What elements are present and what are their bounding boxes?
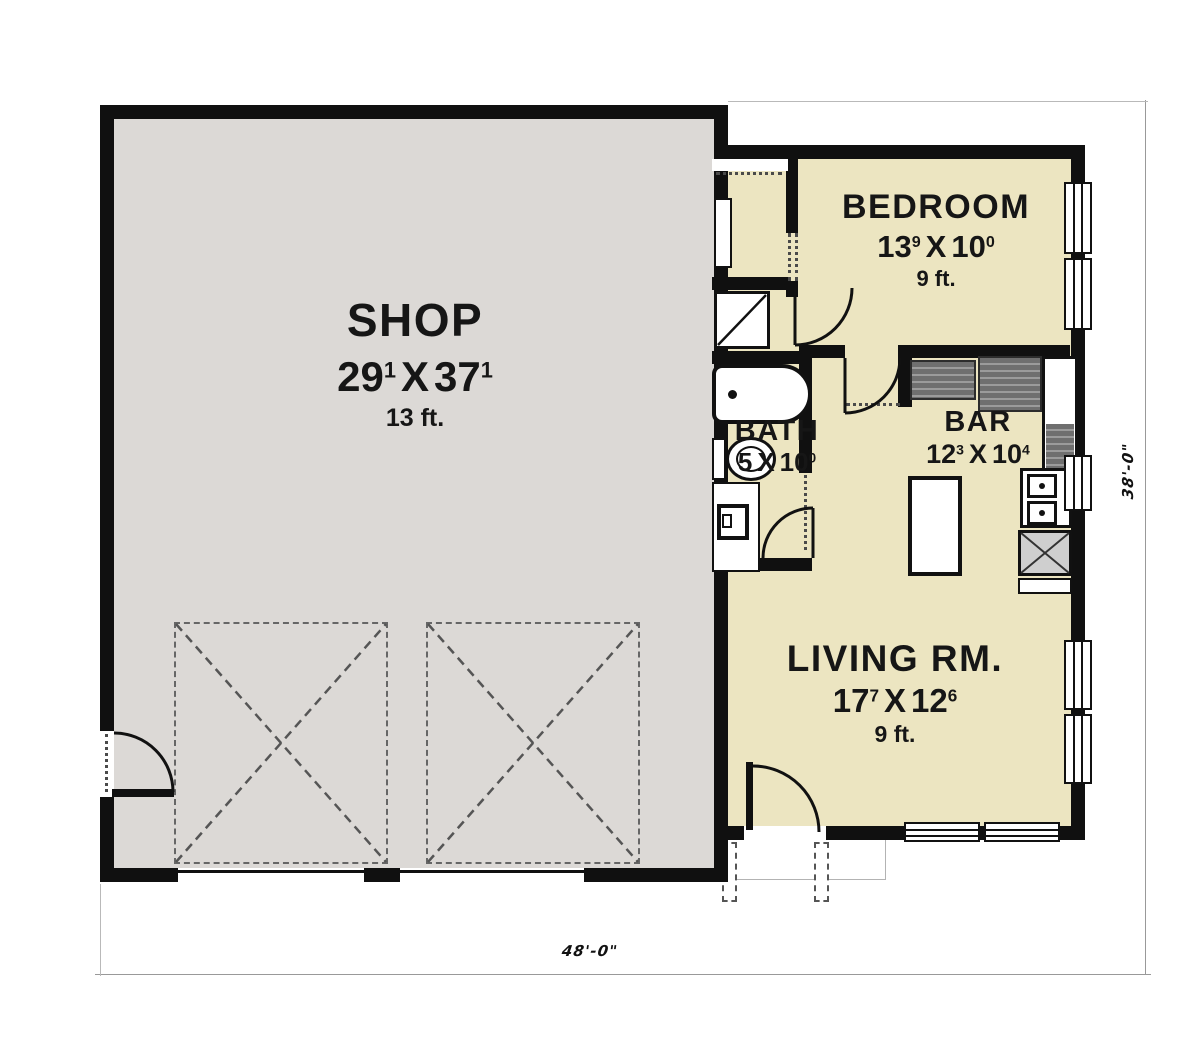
bottom-left-extension-line — [100, 884, 101, 976]
entry-porch — [714, 840, 886, 880]
living-dim-h: 12 — [911, 682, 948, 719]
closet-shelf — [712, 159, 788, 171]
bar-sink-drain-bottom — [1039, 510, 1045, 516]
entry-door-opening — [744, 826, 826, 840]
bedroom-dim-w: 13 — [877, 229, 911, 264]
bar-dimensions: 123X104 — [903, 439, 1053, 469]
bar-dim-w: 12 — [926, 439, 956, 469]
closet-opening-dots-1 — [788, 233, 791, 281]
bath-dim-sep: X — [752, 447, 779, 477]
bar-sink-drain-top — [1039, 483, 1045, 489]
living-label: LIVING RM. 177X126 9 ft. — [745, 638, 1045, 748]
bar-dim-h-sup: 4 — [1022, 442, 1030, 458]
bedroom-dim-h: 10 — [951, 229, 985, 264]
bath-dim-h-sup: 0 — [809, 451, 817, 466]
bar-counter-left — [910, 360, 976, 400]
closet-shelving-unit — [714, 198, 732, 268]
bar-appliance-box — [1018, 530, 1072, 576]
closet-bottom-wall — [712, 277, 788, 290]
garage-door-swing-left — [174, 622, 388, 864]
right-dimension-line — [1145, 100, 1146, 975]
garage-door-panel-left — [178, 870, 364, 873]
bath-dim-w: 5 — [738, 447, 752, 477]
kitchen-island — [908, 476, 962, 576]
bedroom-dim-h-sup: 0 — [986, 233, 995, 251]
bedroom-window-1 — [1064, 182, 1092, 254]
bath-faucet — [722, 514, 732, 528]
top-right-extension-line — [728, 101, 1148, 102]
bedroom-window-2 — [1064, 258, 1092, 330]
shop-dim-h: 37 — [434, 353, 481, 400]
living-dim-w: 17 — [833, 682, 870, 719]
closet-rod-dots — [716, 172, 782, 175]
living-window-right-1 — [1064, 640, 1092, 710]
bath-name: BATH — [712, 415, 842, 447]
shop-dim-w: 29 — [337, 353, 384, 400]
living-ceiling-height: 9 ft. — [745, 722, 1045, 748]
shop-door-leaf — [112, 789, 174, 797]
bedroom-dim-sep: X — [921, 229, 952, 264]
bedroom-name: BEDROOM — [810, 188, 1062, 226]
bath-door-jamb-dots — [804, 475, 807, 550]
shop-dimensions: 291X371 — [250, 353, 580, 400]
living-dim-h-sup: 6 — [948, 686, 958, 706]
shower-fixture — [714, 291, 770, 349]
living-dim-sep: X — [879, 682, 911, 719]
bar-dim-w-sup: 3 — [956, 442, 964, 458]
bath-label: BATH 5X100 — [712, 415, 842, 478]
shower-room-bottom-wall — [712, 351, 812, 364]
bottom-dimension-line — [95, 974, 1151, 975]
shop-label: SHOP 291X371 13 ft. — [250, 295, 580, 432]
living-window-right-2 — [1064, 714, 1092, 784]
bedroom-ceiling-height: 9 ft. — [810, 267, 1062, 292]
bar-dim-sep: X — [964, 439, 992, 469]
bath-dim-h: 10 — [780, 447, 809, 477]
closet-opening-dots-2 — [795, 233, 798, 281]
living-window-bottom-1 — [904, 822, 980, 842]
shop-ceiling-height: 13 ft. — [250, 404, 580, 432]
living-dimensions: 177X126 — [745, 683, 1045, 720]
living-dim-w-sup: 7 — [869, 686, 879, 706]
overall-width-label: 48'-0" — [561, 942, 619, 960]
garage-door-panel-right — [400, 870, 584, 873]
bar-label: BAR 123X104 — [903, 406, 1053, 470]
porch-post-right — [814, 842, 829, 902]
living-name: LIVING RM. — [745, 638, 1045, 679]
bathtub-drain — [728, 390, 737, 399]
shop-name: SHOP — [250, 295, 580, 347]
bedroom-label: BEDROOM 139X100 9 ft. — [810, 188, 1062, 291]
shop-door-jamb-dots — [105, 734, 108, 792]
bar-dim-h: 10 — [992, 439, 1022, 469]
shop-dim-sep: X — [396, 353, 434, 400]
bar-window — [1064, 455, 1092, 511]
entry-door-leaf — [746, 762, 753, 830]
shop-dim-h-sup: 1 — [481, 357, 493, 382]
shop-dim-w-sup: 1 — [384, 357, 396, 382]
overall-height-label: 38'-0" — [1119, 442, 1137, 500]
bedroom-dim-w-sup: 9 — [912, 233, 921, 251]
bar-name: BAR — [903, 406, 1053, 438]
bath-dimensions: 5X100 — [712, 448, 842, 477]
hall-threshold-dots — [846, 403, 900, 406]
bedroom-bottom-wall-left — [799, 345, 845, 358]
bedroom-dimensions: 139X100 — [810, 230, 1062, 265]
bar-cabinet-end — [1018, 578, 1072, 594]
garage-door-swing-right — [426, 622, 640, 864]
bar-counter-right — [978, 356, 1042, 412]
living-window-bottom-2 — [984, 822, 1060, 842]
floor-plan: 48'-0" 38'-0" — [0, 0, 1200, 1043]
